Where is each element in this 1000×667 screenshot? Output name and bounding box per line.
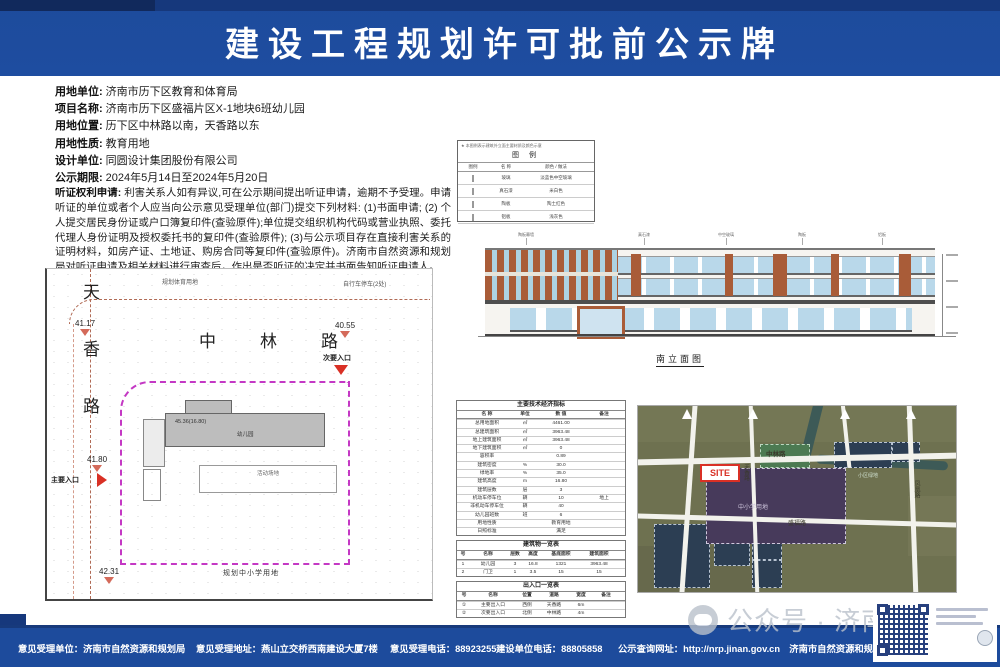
map-road-label: 盛福路 [788,518,806,527]
header-cell: 备注 [593,592,619,599]
floor-divider-band [485,300,935,304]
south-elevation-drawing: 陶板幕墙 真石漆 中空玻璃 陶板 铝板 南立面图 [478,232,970,382]
table-row: 容积率0.89 [457,452,625,460]
ground-floor-windows [510,308,912,332]
header-cell: 位置 [515,592,539,599]
elevation-triangle-icon [92,465,102,472]
table-body: 1幼儿园316.813213963.48 2门卫13.51515 [457,560,625,577]
table-row: 机动车停车位辆10地上 [457,494,625,502]
header-banner: 建设工程规划许可批前公示牌 [0,0,1000,76]
annex-building [143,469,161,501]
map-road-label: 天香路 [742,464,750,481]
table-row: 1幼儿园316.813213963.48 [457,560,625,568]
dimension-tick [946,254,958,256]
table-title: 建筑物一览表 [457,541,625,550]
info-field-label: 设计单位: [55,155,103,167]
material-swatch [472,175,474,182]
material-swatch [472,214,474,221]
footer-builder-phone: 建设单位电话：88805858 [496,641,602,655]
info-field: 用地位置:历下区中林路以南，天香路以东 [55,118,451,135]
map-road-label: 凤凰路 [912,480,921,498]
qr-eye-icon [877,645,888,656]
page-title: 建设工程规划许可批前公示牌 [0,17,1000,66]
road-label-tianxiang: 天香路 [77,283,102,454]
header-cell: 高度 [523,551,543,558]
technical-tables: 主要技术经济指标 名 称单位数 值备注 总用地面积㎡4461.00 总建筑面积㎡… [456,400,626,622]
spot-elevation-marker: 41.17 [75,319,95,336]
project-info: 用地单位:济南市历下区教育和体育局 项目名称:济南市历下区盛福片区X-1地块6班… [55,84,451,276]
table-row: 用地性质教育用地 [457,519,625,527]
material-callout: 陶板 [798,232,806,245]
header-cell: 备注 [589,411,619,418]
facade-pier [899,254,911,296]
header-cell: 名称 [469,551,507,558]
footer-accept-phone: 意见受理电话：88923255 [390,641,496,655]
material-name: 铝板 [488,214,524,220]
indicators-table: 主要技术经济指标 名 称单位数 值备注 总用地面积㎡4461.00 总建筑面积㎡… [456,400,626,536]
material-desc: 米白色 [524,188,588,194]
hearing-rights-paragraph: 听证权利申请:利害关系人如有异议,可在公示期间提出听证申请，逾期不予受理。申请听… [55,187,451,276]
table-body: 总用地面积㎡4461.00 总建筑面积㎡3963.48 地上建筑面积㎡3963.… [457,419,625,535]
north-arrow-icon [748,409,758,419]
header-cell: 单位 [517,411,533,418]
legend-rows: 玻璃 淡蓝色中空玻璃 真石漆 米白色 陶板 陶土红色 铝板 [458,172,594,224]
info-field-value: 2024年5月14日至2024年5月20日 [106,172,269,184]
info-field-label: 用地单位: [55,86,103,98]
playground-label: 活动场地 [257,469,279,477]
material-desc: 淡蓝色中空玻璃 [524,175,588,181]
table-row: 总建筑面积㎡3963.48 [457,428,625,436]
building-name-label: 幼儿园 [237,430,254,438]
material-desc: 陶土红色 [524,201,588,207]
north-arrow-icon [840,409,850,419]
table-row: 总用地面积㎡4461.00 [457,419,625,427]
material-name: 真石漆 [488,188,524,194]
info-field: 公示期限:2024年5月14日至2024年5月20日 [55,170,451,187]
map-parcel-label: 小区绿地 [858,472,878,479]
header-cell: 建筑面积 [579,551,619,558]
header-cell: 道路 [539,592,569,599]
bike-parking-label: 自行车停车(2处) [343,279,386,288]
table-title: 出入口一览表 [457,582,625,591]
facade-pier [831,254,839,296]
legend-header-cell: 名 称 [488,163,524,171]
material-swatch [472,188,474,195]
table-header-row: 名 称单位数 值备注 [457,410,625,419]
site-tag: SITE [700,464,740,482]
table-body: ①主要出入口西侧天香路6m ②次要出入口北侧中林路4m [457,601,625,618]
frame-corner-accent [0,614,26,625]
facade-pier [773,254,787,296]
info-field-label: 公示期限: [55,172,103,184]
legend-header-cell: 颜色 / 做法 [524,163,588,171]
playground-area: 活动场地 [199,465,337,493]
footer-accept-address: 意见受理地址：燕山立交桥西南建设大厦7楼 [196,641,378,655]
material-callout: 陶板幕墙 [518,232,534,245]
annex-building [143,419,165,467]
elevation-triangle-icon [104,577,114,584]
elevation-triangle-icon [340,331,350,338]
header-cell: 宽度 [569,592,593,599]
dimension-line [942,254,943,336]
header-cell: 号 [457,551,469,558]
qr-eye-icon [877,604,888,615]
dimension-tick [946,306,958,308]
info-field-value: 教育用地 [106,138,150,150]
caption-line [936,622,983,625]
adjacent-land-label-south: 规划中小学用地 [223,568,279,578]
info-field: 项目名称:济南市历下区盛福片区X-1地块6班幼儿园 [55,101,451,118]
qr-panel [873,600,997,662]
table-row: ①主要出入口西侧天香路6m [457,601,625,609]
info-field-label: 用地位置: [55,120,103,132]
header-cell: 名 称 [457,411,517,418]
location-map: SITE 中林路 中小学用地 凤凰路 盛福路 小区绿地 天香路 [637,405,957,593]
entrance-marker-icon [97,473,107,487]
road-edge-line-2 [73,324,74,599]
entrances-table: 出入口一览表 号名称位置道路宽度备注 ①主要出入口西侧天香路6m ②次要出入口北… [456,581,626,618]
adjacent-land-label: 规划体育用地 [162,277,198,286]
legend-title: 图 例 [458,150,594,160]
facade-pier [725,254,733,296]
table-row: 建筑层数层3 [457,486,625,494]
table-row: 建筑密度%30.0 [457,461,625,469]
notice-board: 建设工程规划许可批前公示牌 用地单位:济南市历下区教育和体育局 项目名称:济南市… [0,0,1000,667]
caption-line [936,608,988,611]
header-cell: 号 [457,592,471,599]
facade-pier [631,254,641,296]
legend-row: 真石漆 米白色 [458,185,594,198]
map-parcel-label: 中小学用地 [738,502,768,511]
material-callout: 铝板 [878,232,886,245]
facade-brown-section [485,250,618,302]
secondary-entrance-label: 次要入口 [323,353,351,363]
header-cell: 数 值 [533,411,589,418]
info-field-value: 济南市历下区教育和体育局 [106,86,238,98]
material-name: 陶板 [488,201,524,207]
qr-code [875,602,931,658]
entrance-marker-icon [334,365,348,375]
north-arrow-icon [682,409,692,419]
road-edge-line [69,299,430,324]
table-row: ②次要出入口北侧中林路4m [457,609,625,617]
dimension-tick [946,280,958,282]
ground-line [478,336,956,337]
spot-elevation-marker: 42.31 [99,567,119,584]
legend-row: 玻璃 淡蓝色中空玻璃 [458,172,594,185]
table-row: 非机动车停车位辆40 [457,502,625,510]
legend-header-row: 图例名 称颜色 / 做法 [458,162,594,172]
info-field-list: 用地单位:济南市历下区教育和体育局 项目名称:济南市历下区盛福片区X-1地块6班… [55,84,451,187]
table-header-row: 号名称层数高度基底面积建筑面积 [457,550,625,559]
buildings-table: 建筑物一览表 号名称层数高度基底面积建筑面积 1幼儿园316.813213963… [456,540,626,577]
header-top-strip-left [0,0,155,11]
info-field-value: 历下区中林路以南，天香路以东 [106,120,260,132]
footer-query-url: 公示查询网址：http://nrp.jinan.gov.cn 济南市自然资源和规… [618,641,910,655]
header-cell: 名称 [471,592,515,599]
elevation-triangle-icon [80,329,90,336]
elevation-caption: 南立面图 [656,352,704,367]
table-row: 绿地率%35.0 [457,469,625,477]
main-entrance-label: 主要入口 [51,475,79,485]
qr-caption-panel [934,602,995,660]
building-height-label: 45.36(16.80) [175,419,206,425]
qr-eye-icon [918,604,929,615]
info-field: 设计单位:同圆设计集团股份有限公司 [55,153,451,170]
table-row: 地上建筑面积㎡3963.48 [457,436,625,444]
building-facade [485,248,935,336]
site-plan-drawing: 天香路 中林路 41.17 40.55 41.80 42.31 次要入口 主要入… [45,268,433,601]
spot-elevation-marker: 41.80 [87,455,107,472]
legend-row: 铝板 浅灰色 [458,211,594,224]
material-callout: 中空玻璃 [718,232,734,245]
info-field-value: 同圆设计集团股份有限公司 [106,155,238,167]
table-row: 幼儿园班数班6 [457,511,625,519]
spot-elevation-marker: 40.55 [335,321,355,338]
legend-note: ★ 本图例表示建筑外立面主要材质及颜色示意 [458,141,594,149]
hearing-text: 利害关系人如有异议,可在公示期间提出听证申请，逾期不予受理。申请听证的单位或者个… [55,188,451,273]
info-field: 用地性质:教育用地 [55,136,451,153]
legend-header-cell: 图例 [458,163,488,171]
table-row: 2门卫13.51515 [457,568,625,576]
info-field-value: 济南市历下区盛福片区X-1地块6班幼儿园 [106,103,305,115]
dimension-tick [946,332,958,334]
material-callout: 真石漆 [638,232,650,245]
header-cell: 层数 [507,551,523,558]
material-desc: 浅灰色 [524,214,588,220]
table-header-row: 号名称位置道路宽度备注 [457,591,625,600]
wechat-icon [688,605,718,635]
north-arrow-icon [906,409,916,419]
table-row: 日照标准满足 [457,527,625,535]
info-field-label: 项目名称: [55,103,103,115]
footer-accept-unit: 意见受理单位：济南市自然资源和规划局 [18,641,185,655]
material-name: 玻璃 [488,175,524,181]
caption-line [936,615,976,618]
table-row: 地下建筑面积㎡0 [457,444,625,452]
info-field: 用地单位:济南市历下区教育和体育局 [55,84,451,101]
info-field-label: 用地性质: [55,138,103,150]
table-row: 建筑高度m16.80 [457,477,625,485]
header-cell: 基底面积 [543,551,579,558]
map-road-label: 中林路 [766,448,786,458]
official-seal-icon [977,630,993,646]
material-swatch [472,201,474,208]
material-legend-table: ★ 本图例表示建筑外立面主要材质及颜色示意 图 例 图例名 称颜色 / 做法 玻… [457,140,595,222]
hearing-label: 听证权利申请: [55,188,121,199]
legend-row: 陶板 陶土红色 [458,198,594,211]
table-title: 主要技术经济指标 [457,401,625,410]
